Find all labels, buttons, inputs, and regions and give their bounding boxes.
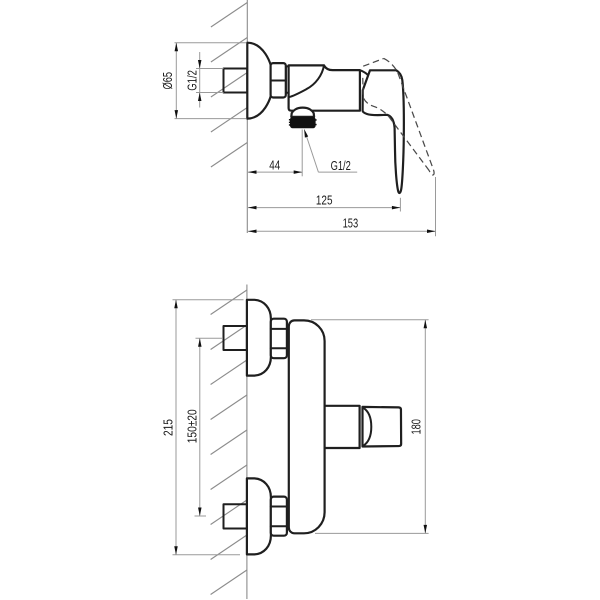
svg-text:G1/2: G1/2 [185,70,200,91]
svg-text:125: 125 [316,192,333,207]
svg-text:180: 180 [408,419,423,435]
svg-text:44: 44 [269,157,280,172]
svg-text:150±20: 150±20 [185,409,200,443]
svg-text:215: 215 [161,419,176,436]
svg-text:153: 153 [343,216,359,231]
svg-text:Ø65: Ø65 [160,72,175,89]
svg-text:G1/2: G1/2 [331,158,351,173]
